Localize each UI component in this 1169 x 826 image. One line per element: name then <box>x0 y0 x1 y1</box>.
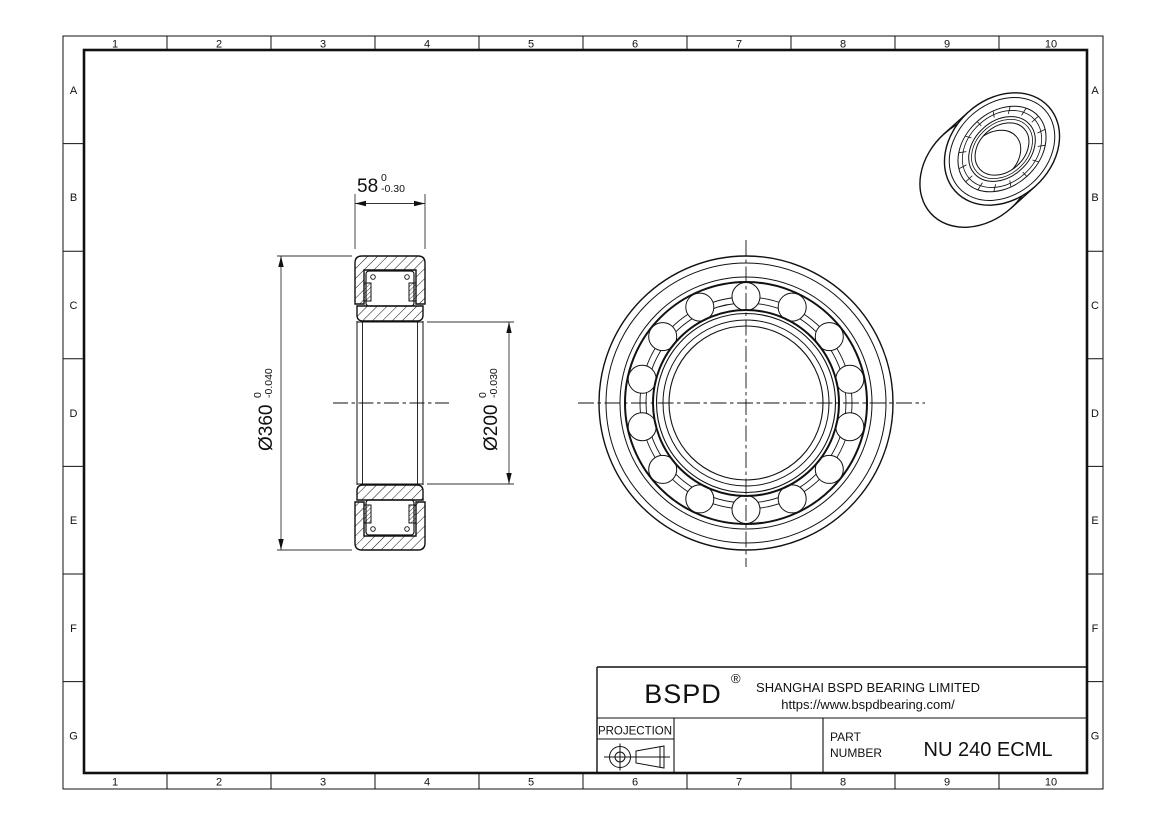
grid-col-label: 8 <box>840 777 846 789</box>
dim-bore-value: Ø200 <box>481 405 502 451</box>
roller-section-bottom <box>366 500 414 535</box>
arrowhead <box>414 201 425 206</box>
grid-row-label: A <box>1091 85 1099 97</box>
cage-bar-section <box>409 505 416 523</box>
dim-width-value: 58 <box>357 176 378 197</box>
title-block: BSPD ® SHANGHAI BSPD BEARING LIMITED htt… <box>597 667 1087 773</box>
part-number-value: NU 240 ECML <box>924 739 1053 761</box>
grid-col-label: 3 <box>320 39 326 51</box>
grid-col-label: 5 <box>528 39 534 51</box>
grid-col-label: 10 <box>1045 777 1057 789</box>
grid-col-label: 5 <box>528 777 534 789</box>
dim-width-tol-lower: -0.30 <box>381 183 405 195</box>
grid-row-label: B <box>1091 192 1098 204</box>
inner-ring-section-bottom <box>357 485 423 500</box>
grid-col-label: 3 <box>320 777 326 789</box>
projection-symbol-icon <box>604 744 670 771</box>
front-view <box>578 240 925 567</box>
dim-od-tol-lower: -0.040 <box>263 368 275 398</box>
isometric-view <box>897 70 1082 251</box>
arrowhead <box>278 539 283 550</box>
registered-mark: ® <box>731 671 741 686</box>
company-website: https://www.bspdbearing.com/ <box>781 697 955 712</box>
brand-logo-text: BSPD <box>644 679 722 709</box>
grid-col-label: 6 <box>632 39 638 51</box>
grid-row-label: G <box>1091 731 1100 743</box>
company-name: SHANGHAI BSPD BEARING LIMITED <box>756 680 980 695</box>
cross-section-view <box>333 256 449 550</box>
grid-col-label: 10 <box>1045 39 1057 51</box>
engineering-drawing-svg: 1 2 3 4 5 6 7 8 9 10 1 2 3 4 5 6 7 8 9 1… <box>0 0 1169 826</box>
grid-col-label: 4 <box>424 777 430 789</box>
grid-row-label: B <box>70 192 77 204</box>
grid-col-label: 9 <box>944 39 950 51</box>
grid-col-label: 1 <box>112 39 118 51</box>
grid-col-label: 4 <box>424 39 430 51</box>
grid-row-label: E <box>70 515 77 527</box>
roller <box>836 413 864 441</box>
projection-label: PROJECTION <box>598 726 672 738</box>
cage-bar-section <box>364 283 371 301</box>
grid-row-label: G <box>69 731 78 743</box>
dim-bore-tol-lower: -0.030 <box>488 368 500 398</box>
grid-row-label: C <box>70 300 78 312</box>
part-number-label-line2: NUMBER <box>830 746 882 760</box>
roller-section-top <box>366 271 414 306</box>
arrowhead <box>355 201 366 206</box>
grid-row-label: F <box>70 623 77 635</box>
cage-bar-section <box>364 505 371 523</box>
grid-row-label: D <box>70 408 78 420</box>
arrowhead <box>506 322 511 333</box>
grid-row-label: A <box>70 85 78 97</box>
roller <box>628 413 656 441</box>
roller <box>628 365 656 393</box>
grid-col-label: 2 <box>216 777 222 789</box>
grid-col-label: 9 <box>944 777 950 789</box>
cage-bar-section <box>409 283 416 301</box>
dimension-width: 58 0 -0.30 <box>355 172 425 249</box>
grid-row-label: C <box>1091 300 1099 312</box>
grid-col-label: 8 <box>840 39 846 51</box>
roller <box>836 365 864 393</box>
grid-col-label: 2 <box>216 39 222 51</box>
inner-ring-section-top <box>357 306 423 321</box>
grid-col-label: 7 <box>736 777 742 789</box>
dim-od-value: Ø360 <box>256 405 277 451</box>
grid-row-label: F <box>1092 623 1099 635</box>
drawing-sheet: 1 2 3 4 5 6 7 8 9 10 1 2 3 4 5 6 7 8 9 1… <box>0 0 1169 826</box>
grid-col-label: 7 <box>736 39 742 51</box>
part-number-label-line1: PART <box>830 730 862 744</box>
arrowhead <box>278 256 283 267</box>
arrowhead <box>506 473 511 484</box>
grid-col-label: 1 <box>112 777 118 789</box>
grid-col-label: 6 <box>632 777 638 789</box>
grid-row-label: E <box>1091 515 1098 527</box>
grid-row-label: D <box>1091 408 1099 420</box>
